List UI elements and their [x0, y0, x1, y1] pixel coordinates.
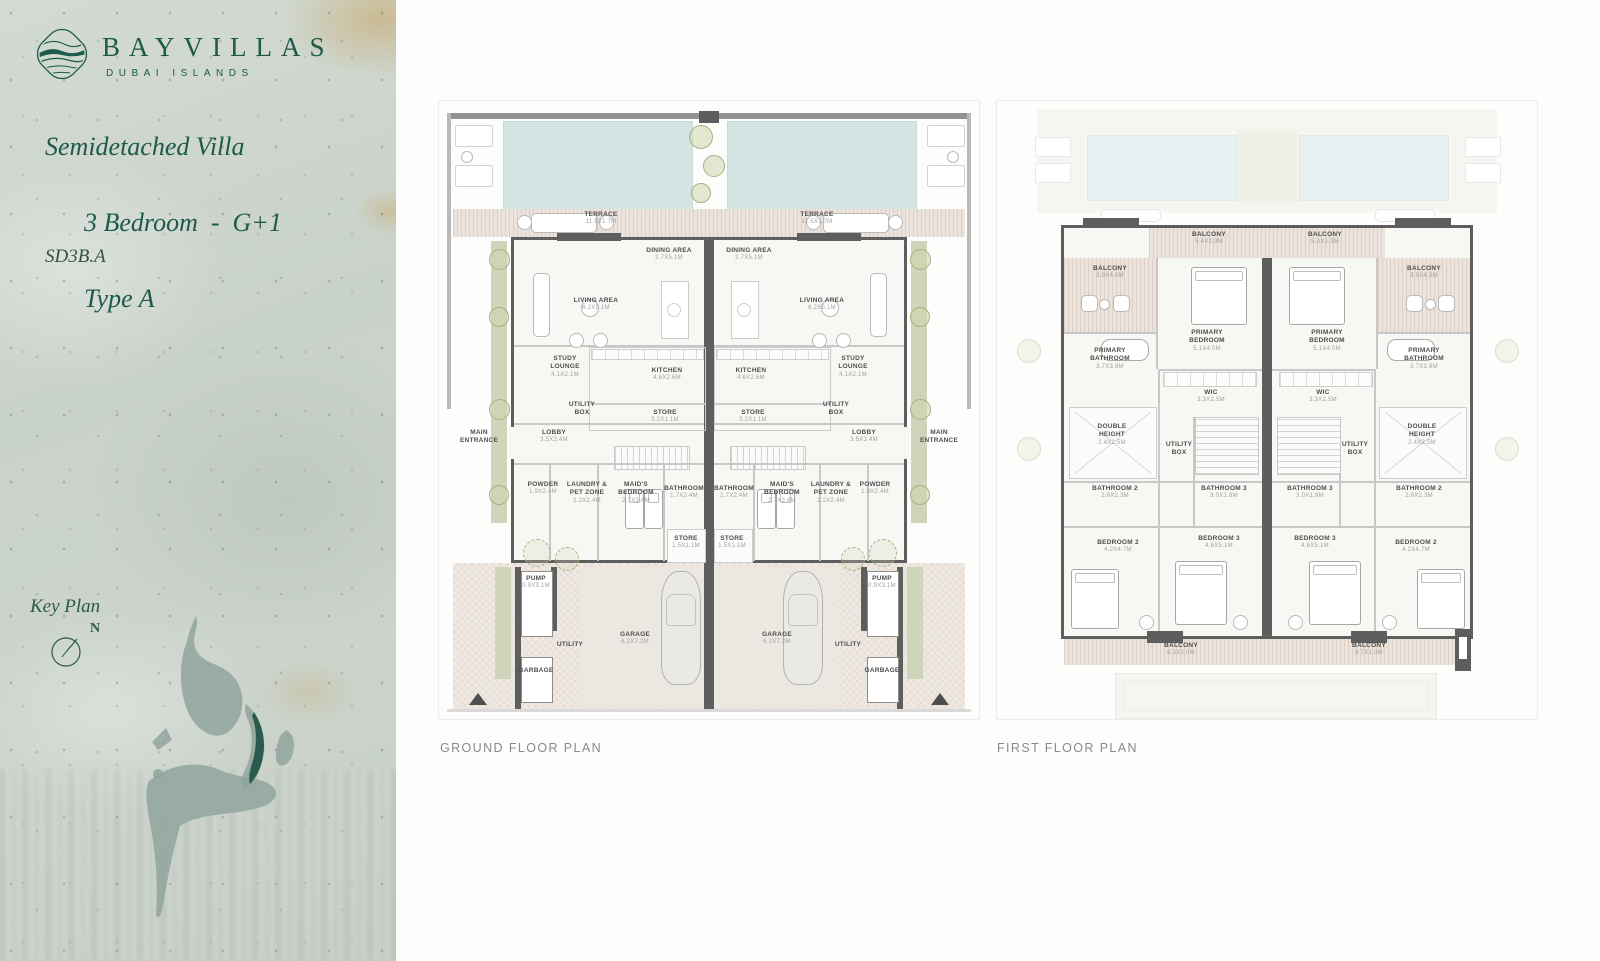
- party-wall: [704, 563, 714, 709]
- chair-icon: [1233, 615, 1248, 630]
- first-floor-caption: FIRST FLOOR PLAN: [997, 741, 1138, 755]
- table-icon: [1425, 299, 1436, 310]
- tree-icon: [910, 307, 930, 327]
- bed-icon: [1175, 561, 1227, 625]
- garbage-room: [867, 657, 899, 703]
- ghost-tree-icon: [1495, 437, 1519, 461]
- staircase: [1277, 417, 1341, 475]
- room-label-maids-bedroom: MAID'S BEDROOM2.7X3.6M: [760, 481, 804, 506]
- room-label-utility-box: UTILITY BOX: [566, 401, 598, 418]
- interior-wall: [514, 463, 704, 465]
- room-label-garage: GARAGE6.2X7.2M: [620, 631, 650, 647]
- centerpiece-icon: [737, 303, 751, 317]
- party-wall-cap: [699, 111, 719, 123]
- entry-arrow-icon: [931, 693, 949, 705]
- side-table-icon: [461, 151, 473, 163]
- ghost-tree-icon: [1017, 339, 1041, 363]
- key-plan-label: Key Plan: [30, 596, 100, 618]
- store-room: [589, 403, 706, 431]
- staircase: [730, 446, 806, 470]
- room-label-terrace: TERRACE11.5X1.7M: [584, 211, 617, 227]
- garbage-room: [521, 657, 553, 703]
- bay-villas-logo-icon: [28, 20, 96, 88]
- garden-strip: [907, 567, 923, 679]
- room-label-main-entrance: MAIN ENTRANCE: [918, 429, 960, 446]
- chair-icon: [836, 333, 851, 348]
- store-room: [714, 403, 831, 431]
- room-label-lobby: LOBBY3.5X3.4M: [540, 429, 568, 445]
- room-label-bedroom3: BEDROOM 34.6X5.1M: [1294, 535, 1336, 551]
- room-label-garbage: GARBAGE: [519, 667, 554, 675]
- first-floor-plan: BALCONY5.4X1.3M BALCONY5.4X1.3M BALCONY3…: [996, 100, 1538, 720]
- room-label-bedroom2: BEDROOM 24.2X4.7M: [1395, 539, 1437, 555]
- ghost-lounger: [1035, 163, 1071, 183]
- interior-wall: [1272, 481, 1470, 483]
- garden-strip: [495, 567, 511, 679]
- window-header: [557, 233, 621, 241]
- room-label-wic: WIC3.3X2.5M: [1197, 389, 1225, 405]
- compass-north-letter: N: [90, 621, 100, 636]
- kitchen-counter: [716, 349, 829, 360]
- entrance-opening: [902, 427, 910, 459]
- room-label-laundry: LAUNDRY & PET ZONE2.2X2.4M: [565, 481, 609, 506]
- room-label-powder: POWDER1.9X2.4M: [528, 481, 559, 497]
- roof-inner-line: [1124, 681, 1428, 711]
- room-label-laundry: LAUNDRY & PET ZONE2.2X2.4M: [809, 481, 853, 506]
- room-label-dining: DINING AREA2.7X5.1M: [646, 247, 691, 263]
- key-plan-map: [118, 592, 378, 942]
- chair-icon: [812, 333, 827, 348]
- lounger-icon: [927, 125, 965, 147]
- title-line3: Type A: [84, 284, 155, 313]
- room-label-utility: UTILITY: [835, 641, 861, 649]
- room-label-living: LIVING AREA6.2X5.1M: [574, 297, 618, 313]
- chair-icon: [593, 333, 608, 348]
- site-wall: [967, 113, 971, 409]
- entry-arrow-icon: [469, 693, 487, 705]
- room-label-terrace: TERRACE11.5X1.7M: [800, 211, 833, 227]
- interior-wall: [1376, 258, 1378, 369]
- ghost-pool: [1299, 135, 1449, 201]
- title-line1: Semidetached Villa: [45, 132, 245, 161]
- car-icon: [783, 571, 823, 685]
- shrub-icon: [523, 539, 551, 567]
- room-label-bedroom2: BEDROOM 24.2X4.7M: [1097, 539, 1139, 555]
- room-label-primary-bedroom: PRIMARY BEDROOM5.1X4.0M: [1185, 329, 1229, 354]
- interior-wall: [663, 463, 665, 561]
- bed-icon: [1417, 569, 1465, 629]
- interior-wall: [819, 463, 821, 561]
- tree-icon: [489, 249, 510, 270]
- villa-title: Semidetached Villa 3 Bedroom - G+1 Type …: [45, 128, 375, 318]
- sofa-icon: [870, 273, 887, 337]
- lounger-icon: [455, 165, 493, 187]
- room-label-store: STORE3.2X1.1M: [651, 409, 679, 425]
- car-icon: [661, 571, 701, 685]
- wic-closet: [1279, 372, 1373, 387]
- plant-icon: [703, 155, 725, 177]
- ghost-planting: [1237, 129, 1297, 203]
- chair-icon: [1438, 295, 1455, 312]
- chair-icon: [517, 215, 532, 230]
- room-label-bathroom2: BATHROOM 22.9X2.3M: [1092, 485, 1138, 501]
- balcony-deck-bottom: [1064, 639, 1470, 665]
- room-label-balcony-side: BALCONY3.9X4.0M: [1407, 265, 1441, 281]
- room-label-primary-bathroom: PRIMARY BATHROOM3.7X3.9M: [1400, 347, 1448, 372]
- shrub-icon: [555, 547, 579, 571]
- tree-icon: [910, 399, 931, 420]
- staircase: [1195, 417, 1259, 475]
- site-wall: [447, 113, 451, 409]
- room-label-store-small: STORE1.5X1.1M: [718, 535, 746, 551]
- room-label-pump: PUMP0.9X3.1M: [522, 575, 550, 591]
- balcony-deck-top: [1149, 228, 1385, 258]
- interior-wall: [1272, 369, 1374, 371]
- ghost-pool: [1087, 135, 1237, 201]
- room-label-powder: POWDER1.9X2.4M: [860, 481, 891, 497]
- chair-icon: [1113, 295, 1130, 312]
- room-label-kitchen: KITCHEN4.6X2.6M: [652, 367, 683, 383]
- room-label-bathroom3: BATHROOM 33.0X1.8M: [1201, 485, 1247, 501]
- ghost-lounger: [1465, 163, 1501, 183]
- sofa-icon: [533, 273, 550, 337]
- room-label-utility-box: UTILITY BOX: [820, 401, 852, 418]
- party-wall: [1262, 225, 1272, 655]
- shrub-icon: [841, 547, 865, 571]
- pier-slot: [1459, 637, 1467, 659]
- room-label-bathroom: BATHROOM1.7X2.4M: [714, 485, 754, 501]
- room-label-lobby: LOBBY3.5X3.4M: [850, 429, 878, 445]
- room-label-utility-box: UTILITY BOX: [1163, 441, 1195, 458]
- room-label-store-small: STORE1.5X1.1M: [672, 535, 700, 551]
- interior-wall: [753, 463, 755, 561]
- ghost-lounger: [1465, 137, 1501, 157]
- room-label-balcony-side: BALCONY3.9X4.0M: [1093, 265, 1127, 281]
- room-label-garage: GARAGE6.2X7.2M: [762, 631, 792, 647]
- tree-icon: [910, 485, 930, 505]
- garden-strip: [911, 241, 927, 523]
- entrance-opening: [508, 427, 516, 459]
- room-label-bathroom: BATHROOM1.7X2.4M: [664, 485, 704, 501]
- roof-outline: [1115, 673, 1437, 719]
- shrub-icon: [869, 539, 897, 567]
- room-label-maids-bedroom: MAID'S BEDROOM2.7X3.6M: [614, 481, 658, 506]
- chair-icon: [888, 215, 903, 230]
- interior-wall: [1064, 526, 1262, 528]
- ghost-lounger: [1035, 137, 1071, 157]
- tree-icon: [910, 249, 931, 270]
- room-label-double-height: DOUBLE HEIGHT2.4X2.5M: [1093, 423, 1131, 448]
- brochure-page: BAYVILLAS DUBAI ISLANDS Semidetached Vil…: [0, 0, 1600, 961]
- interior-wall: [1160, 369, 1262, 371]
- bed-icon: [1309, 561, 1361, 625]
- interior-wall: [1064, 332, 1156, 334]
- ghost-tree-icon: [1495, 339, 1519, 363]
- interior-wall: [1156, 258, 1158, 369]
- chair-icon: [1288, 615, 1303, 630]
- interior-wall: [597, 463, 599, 561]
- ghost-tree-icon: [1017, 437, 1041, 461]
- bed-icon: [1191, 267, 1247, 325]
- room-label-balcony-bottom: BALCONY8.7X1.0M: [1352, 642, 1386, 658]
- lounger-icon: [455, 125, 493, 147]
- room-label-double-height: DOUBLE HEIGHT2.4X2.5M: [1403, 423, 1441, 448]
- room-label-kitchen: KITCHEN4.6X2.6M: [736, 367, 767, 383]
- lounger-icon: [927, 165, 965, 187]
- room-label-bathroom2: BATHROOM 22.9X2.3M: [1396, 485, 1442, 501]
- room-label-utility: UTILITY: [557, 641, 583, 649]
- centerpiece-icon: [667, 303, 681, 317]
- chair-icon: [1081, 295, 1098, 312]
- interior-wall: [1374, 369, 1376, 639]
- room-label-balcony-top: BALCONY5.4X1.3M: [1192, 231, 1226, 247]
- table-icon: [1099, 299, 1110, 310]
- room-label-study: STUDY LOUNGE4.1X2.1M: [545, 355, 585, 380]
- room-label-utility-box: UTILITY BOX: [1339, 441, 1371, 458]
- room-label-primary-bedroom: PRIMARY BEDROOM5.1X4.0M: [1305, 329, 1349, 354]
- interior-wall: [867, 463, 869, 561]
- parapet-step: [1395, 218, 1451, 227]
- kitchen-counter: [591, 349, 704, 360]
- tree-icon: [489, 307, 509, 327]
- parapet-step: [1083, 218, 1139, 227]
- interior-wall: [1272, 526, 1470, 528]
- ground-floor-plan: TERRACE11.5X1.7M TERRACE11.5X1.7M DINING…: [438, 100, 980, 720]
- side-table-icon: [947, 151, 959, 163]
- bed-icon: [1071, 569, 1119, 629]
- window-header: [797, 233, 861, 241]
- chair-icon: [1139, 615, 1154, 630]
- room-label-dining: DINING AREA2.7X5.1M: [726, 247, 771, 263]
- room-label-main-entrance: MAIN ENTRANCE: [458, 429, 500, 446]
- site-wall: [447, 709, 971, 712]
- brand-tagline: DUBAI ISLANDS: [106, 68, 254, 79]
- wic-closet: [1163, 372, 1257, 387]
- room-label-primary-bathroom: PRIMARY BATHROOM3.7X3.9M: [1086, 347, 1134, 372]
- ground-floor-caption: GROUND FLOOR PLAN: [440, 741, 602, 755]
- plant-icon: [691, 183, 711, 203]
- sidebar: BAYVILLAS DUBAI ISLANDS Semidetached Vil…: [0, 0, 396, 961]
- interior-wall: [1378, 332, 1470, 334]
- title-line2: 3 Bedroom - G+1: [84, 208, 282, 237]
- pool: [503, 121, 693, 211]
- room-label-study: STUDY LOUNGE4.1X2.1M: [833, 355, 873, 380]
- room-label-garbage: GARBAGE: [865, 667, 900, 675]
- interior-wall: [1064, 481, 1262, 483]
- room-label-bedroom3: BEDROOM 34.6X5.1M: [1198, 535, 1240, 551]
- room-label-balcony-bottom: BALCONY9.3X1.0M: [1164, 642, 1198, 658]
- chair-icon: [1406, 295, 1423, 312]
- tree-icon: [489, 399, 510, 420]
- chair-icon: [1382, 615, 1397, 630]
- room-label-bathroom3: BATHROOM 33.0X1.8M: [1287, 485, 1333, 501]
- unit-code: SD3B.A: [45, 246, 106, 268]
- room-label-living: LIVING AREA6.2X5.1M: [800, 297, 844, 313]
- interior-wall: [714, 463, 904, 465]
- room-label-wic: WIC3.3X2.5M: [1309, 389, 1337, 405]
- tree-icon: [489, 485, 509, 505]
- plant-icon: [689, 125, 713, 149]
- room-label-store: STORE3.2X1.1M: [739, 409, 767, 425]
- room-label-pump: PUMP0.9X3.1M: [868, 575, 896, 591]
- bed-icon: [1289, 267, 1345, 325]
- interior-wall: [1158, 369, 1160, 639]
- north-compass-icon: N: [46, 616, 118, 676]
- chair-icon: [569, 333, 584, 348]
- garden-strip: [491, 241, 507, 523]
- pool: [727, 121, 917, 211]
- staircase: [614, 446, 690, 470]
- brand-name: BAYVILLAS: [102, 32, 334, 63]
- room-label-balcony-top: BALCONY5.4X1.3M: [1308, 231, 1342, 247]
